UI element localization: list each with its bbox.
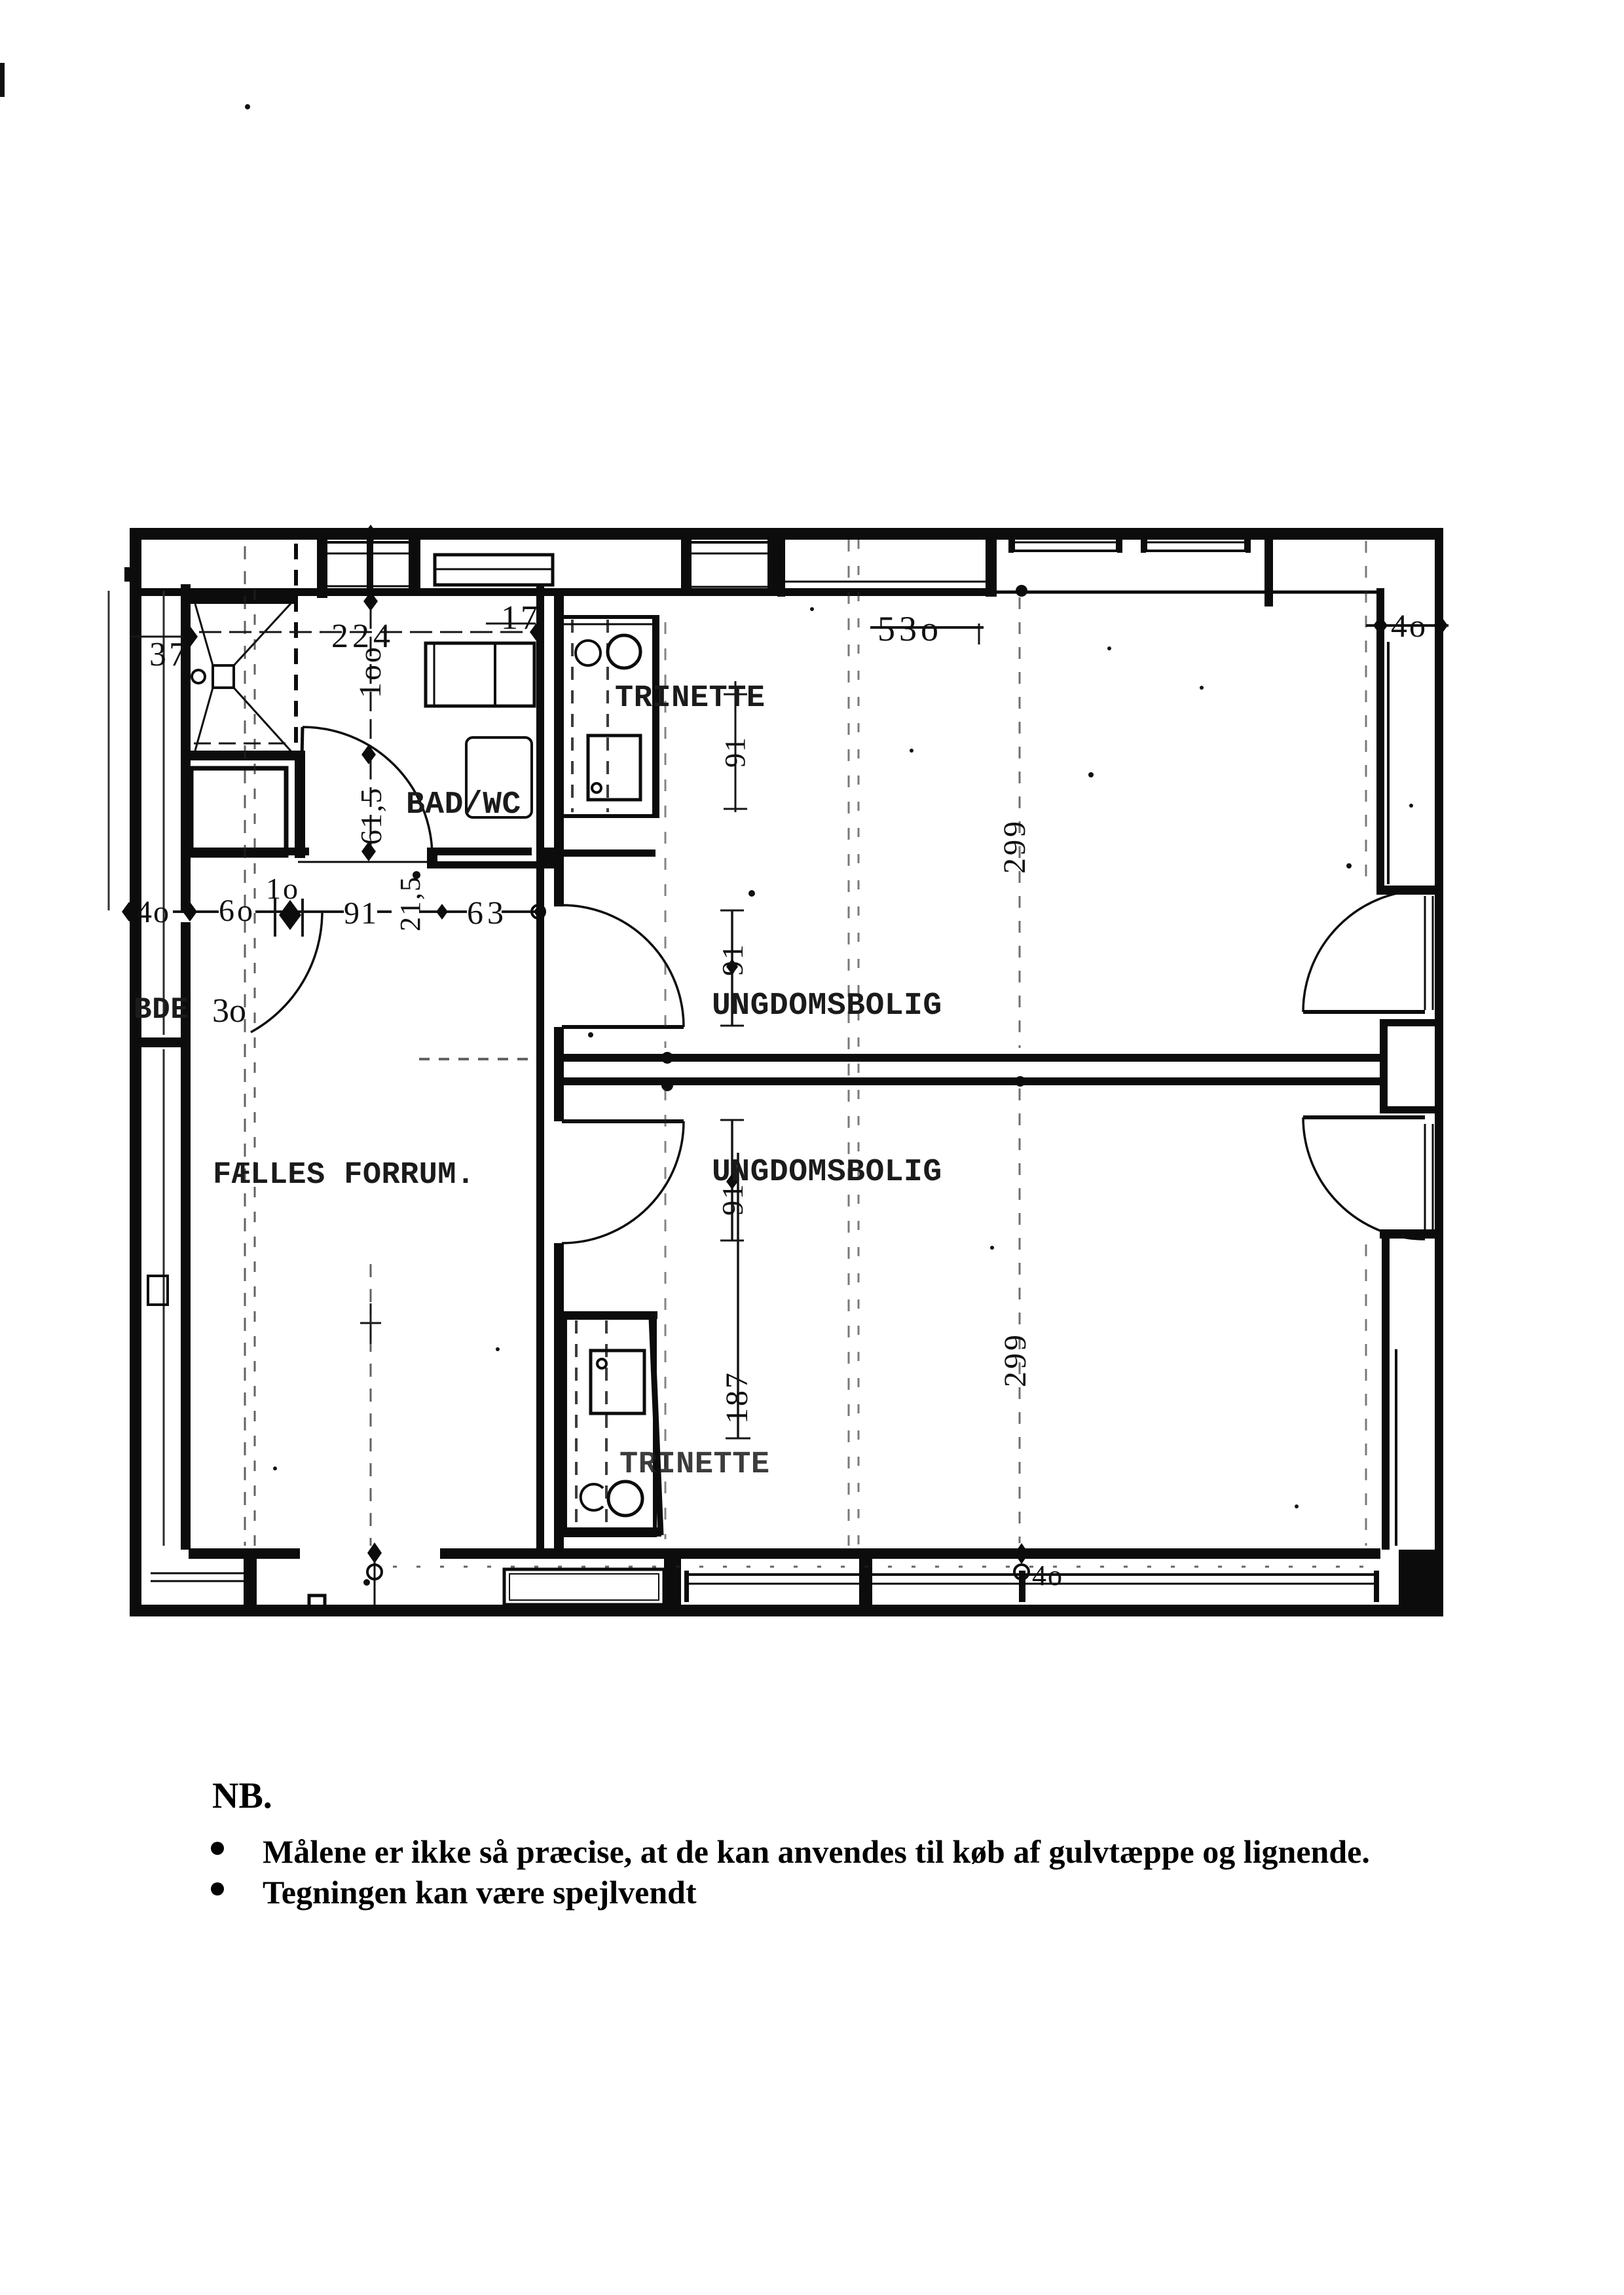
svg-text:4o: 4o [1391, 607, 1428, 644]
svg-text:FÆLLES FORRUM.: FÆLLES FORRUM. [213, 1158, 475, 1193]
svg-text:1oo: 1oo [353, 645, 388, 698]
svg-text:91: 91 [719, 736, 751, 768]
svg-text:37: 37 [149, 636, 189, 673]
svg-text:63: 63 [467, 894, 507, 931]
svg-text:91: 91 [716, 1183, 749, 1216]
svg-text:6o: 6o [219, 893, 255, 928]
svg-text:53o: 53o [877, 609, 942, 648]
svg-text:91: 91 [344, 896, 378, 931]
svg-text:Tegningen kan være spejlvendt: Tegningen kan være spejlvendt [263, 1874, 697, 1911]
svg-text:TRINETTE: TRINETTE [619, 1447, 770, 1482]
svg-text:BDE: BDE [134, 993, 189, 1027]
svg-text:61,5: 61,5 [354, 787, 388, 846]
svg-text:299: 299 [998, 1332, 1033, 1387]
svg-text:3o: 3o [212, 992, 246, 1030]
svg-text:187: 187 [720, 1371, 754, 1424]
svg-text:UNGDOMSBOLIG: UNGDOMSBOLIG [712, 988, 942, 1024]
svg-text:21,5: 21,5 [394, 876, 426, 931]
svg-text:Målene er ikke så præcise, at: Målene er ikke så præcise, at de kan anv… [263, 1833, 1370, 1870]
svg-text:BAD/WC: BAD/WC [406, 787, 521, 823]
svg-text:TRINETTE: TRINETTE [615, 681, 766, 716]
svg-text:4o: 4o [136, 895, 170, 929]
svg-text:4o: 4o [1032, 1559, 1063, 1592]
svg-text:91: 91 [716, 943, 749, 976]
svg-text:NB.: NB. [212, 1776, 272, 1816]
svg-text:1o: 1o [266, 872, 300, 905]
svg-text:17: 17 [501, 599, 540, 637]
svg-text:299: 299 [997, 819, 1032, 874]
